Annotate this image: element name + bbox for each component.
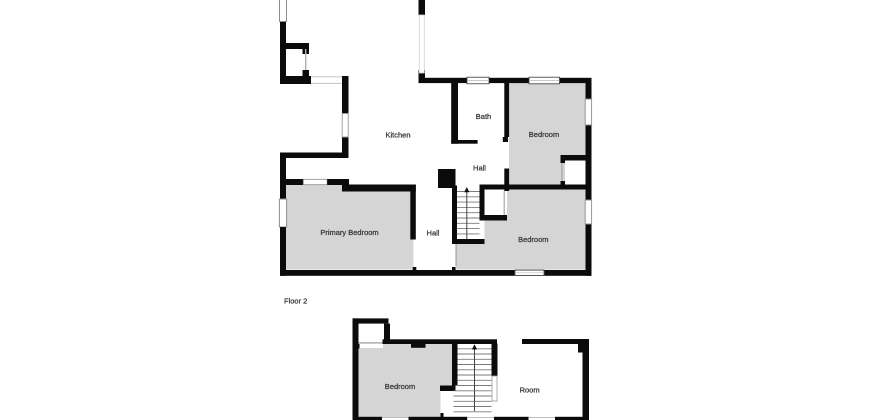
svg-text:Bedroom: Bedroom: [529, 130, 559, 139]
svg-text:Floor 2: Floor 2: [284, 297, 307, 306]
svg-text:Bath: Bath: [476, 112, 491, 121]
svg-text:Hall: Hall: [427, 229, 440, 238]
svg-text:Bedroom: Bedroom: [518, 235, 548, 244]
svg-text:Kitchen: Kitchen: [385, 131, 410, 140]
svg-text:Room: Room: [520, 386, 540, 395]
svg-text:Primary Bedroom: Primary Bedroom: [320, 228, 378, 237]
svg-text:Hall: Hall: [473, 164, 486, 173]
svg-text:Bedroom: Bedroom: [385, 382, 415, 391]
